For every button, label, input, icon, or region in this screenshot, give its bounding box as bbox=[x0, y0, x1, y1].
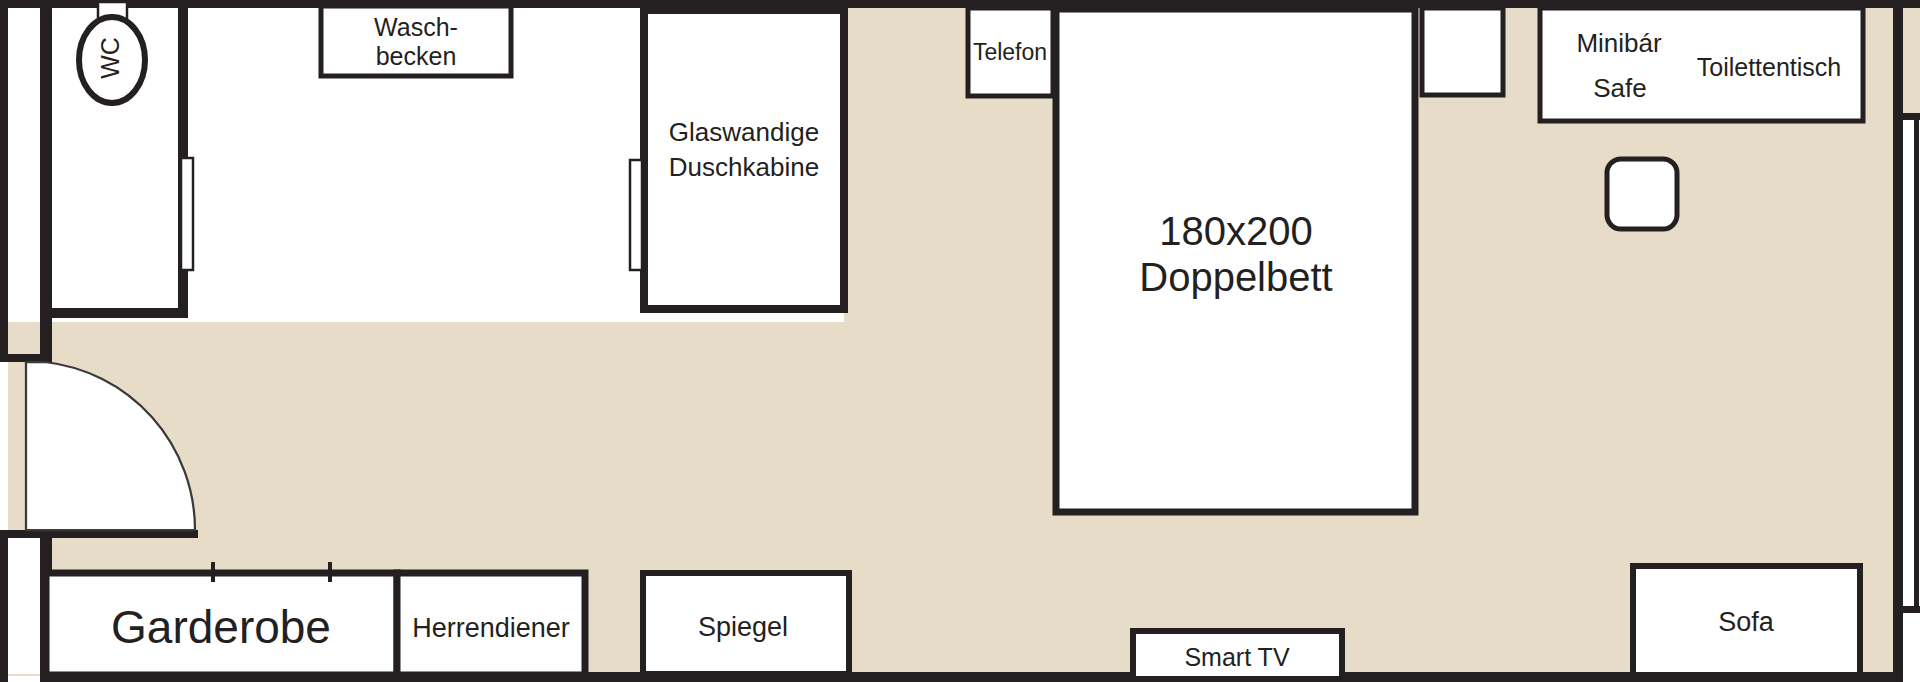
bed-label-line2: Doppelbett bbox=[1139, 255, 1332, 299]
doorway-top-jamb bbox=[0, 354, 52, 362]
bed-label-line1: 180x200 bbox=[1159, 209, 1312, 253]
phone-label: Telefon bbox=[973, 39, 1047, 65]
nightstand-box bbox=[1422, 8, 1503, 95]
safe-icon bbox=[1607, 159, 1677, 229]
wc-bottom-wall bbox=[40, 308, 188, 318]
shower-door bbox=[630, 160, 642, 270]
floor-plan: WC Wasch- becken Glaswandige Duschkabine… bbox=[0, 0, 1920, 682]
wall-left-outer-upper bbox=[0, 0, 8, 362]
wardrobe-tick-right bbox=[328, 562, 332, 582]
dressing-table-label: Toilettentisch bbox=[1697, 53, 1842, 81]
wall-left-inner-upper bbox=[40, 0, 52, 362]
shower-label-line2: Duschkabine bbox=[669, 152, 819, 182]
wc-label: WC bbox=[96, 37, 124, 79]
doorway-threshold bbox=[0, 530, 198, 538]
wall-right bbox=[1893, 0, 1903, 682]
valet-label: Herrendiener bbox=[412, 613, 570, 643]
sofa-label: Sofa bbox=[1718, 607, 1775, 637]
washbasin-label-line1: Wasch- bbox=[374, 13, 458, 41]
wardrobe-label: Garderobe bbox=[111, 601, 331, 653]
left-wall-cavity bbox=[8, 538, 40, 674]
safe-label: Safe bbox=[1593, 73, 1647, 103]
wc-door bbox=[181, 158, 193, 270]
wall-left-outer-lower bbox=[0, 530, 8, 682]
washbasin-label-line2: becken bbox=[376, 42, 457, 70]
floor-plan-canvas: WC Wasch- becken Glaswandige Duschkabine… bbox=[0, 0, 1920, 682]
shower-label-line1: Glaswandige bbox=[669, 117, 819, 147]
wardrobe-tick-left bbox=[211, 562, 215, 582]
outside-wall-strip bbox=[1903, 8, 1920, 113]
window-outer-line bbox=[1914, 113, 1919, 613]
mirror-label: Spiegel bbox=[698, 612, 788, 642]
minibar-label: Minibár bbox=[1576, 28, 1662, 58]
smart-tv-label: Smart TV bbox=[1184, 643, 1289, 671]
